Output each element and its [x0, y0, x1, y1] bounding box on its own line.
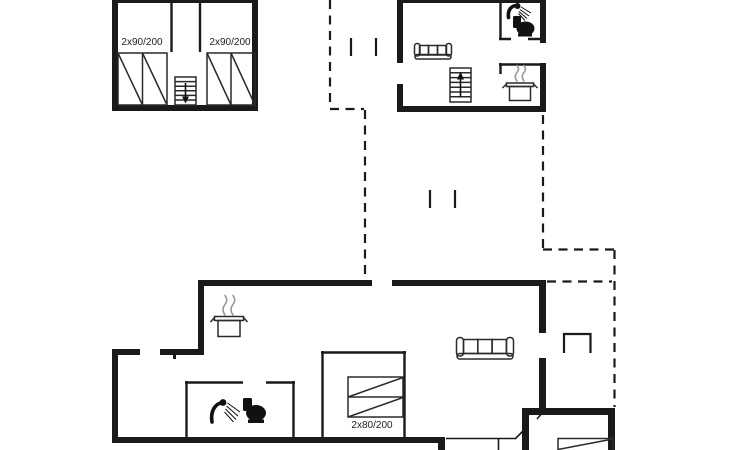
wall: [608, 415, 615, 450]
toilet-icon: [243, 398, 266, 423]
stairs-up-icon: [450, 68, 471, 102]
shower-icon: [212, 399, 240, 422]
wall: [397, 0, 403, 63]
sofa-icon: [457, 338, 514, 360]
step-marks: [351, 38, 376, 56]
floor-plan-drawing: [0, 0, 730, 450]
wall: [112, 437, 443, 443]
wall: [160, 349, 204, 355]
terrace-outline: [330, 0, 615, 407]
step-marks: [430, 190, 455, 208]
stove-pot-icon: [503, 66, 538, 101]
terrace-chair-icon: [564, 334, 591, 353]
wall: [198, 280, 372, 286]
main-bathroom: [185, 381, 295, 441]
upper-floor-unit: [112, 0, 258, 111]
wall: [522, 415, 529, 450]
bed-size-label: 2x80/200: [346, 420, 398, 431]
wall: [198, 280, 204, 354]
annex-unit: [397, 0, 546, 112]
double-bed-icon: [348, 377, 403, 417]
wall: [397, 0, 546, 3]
wall: [397, 106, 546, 112]
wall: [539, 358, 546, 410]
stove-pot-icon: [211, 296, 248, 337]
wall: [540, 0, 546, 43]
wall: [112, 0, 118, 111]
double-bed-icon: [207, 53, 255, 105]
sofa-icon: [415, 44, 452, 60]
stairs-down-icon: [175, 77, 196, 105]
door-tick: [173, 355, 176, 359]
wall: [112, 0, 258, 3]
wall: [539, 280, 546, 333]
partial-bed-icon: [558, 439, 613, 450]
wall: [540, 63, 546, 108]
wall: [397, 84, 403, 108]
double-bed-icon: [118, 53, 167, 105]
wall: [112, 349, 118, 443]
wall: [392, 280, 540, 286]
floor-plan-canvas: 2x90/200 2x90/200 2x80/200: [0, 0, 730, 450]
wall: [522, 408, 615, 415]
bed-size-label: 2x90/200: [205, 37, 255, 48]
wall: [438, 437, 445, 450]
bed-size-label: 2x90/200: [117, 37, 167, 48]
kitchen-wall: [499, 63, 542, 74]
wall: [112, 105, 258, 111]
